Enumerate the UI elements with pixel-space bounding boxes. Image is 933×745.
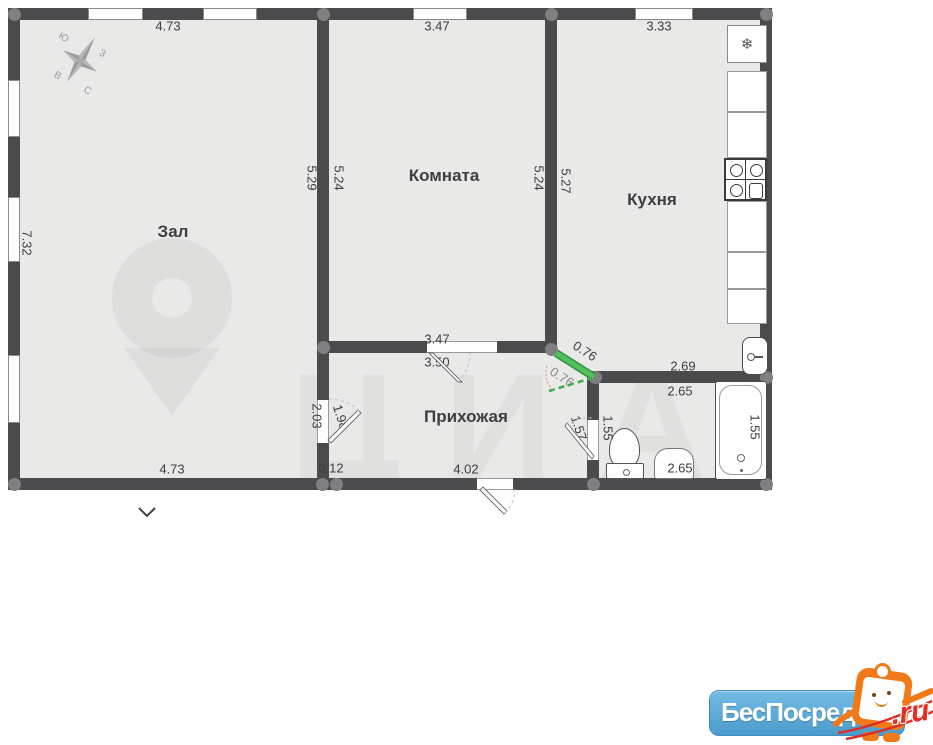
door-entrance <box>480 487 515 514</box>
dim-bath-bottom: 2.65 <box>667 461 692 476</box>
fridge-snowflake-icon: ❄ <box>741 36 754 53</box>
door-opening-bathroom <box>587 420 599 460</box>
dim-komnata-left: 5.24 <box>332 165 347 190</box>
watermark-pin-hole <box>152 278 192 318</box>
stove <box>724 158 767 201</box>
dim-zal-door-a: 2.03 <box>310 403 325 428</box>
kitchen-counter-4 <box>727 252 767 289</box>
window-left-3 <box>8 355 20 423</box>
room-label-zal: Зал <box>158 222 189 242</box>
kitchen-sink <box>742 337 768 375</box>
watermark-pin-point <box>124 348 220 416</box>
toilet-tank <box>606 463 644 479</box>
wall-komnata-kuhnya <box>545 8 557 353</box>
toilet-button-icon <box>623 469 630 476</box>
logo-mascot-foot <box>883 733 900 742</box>
room-label-komnata: Комната <box>409 166 480 186</box>
dim-top-zal: 4.73 <box>155 19 180 34</box>
window-top-1 <box>88 8 143 20</box>
scroll-down-chevron-icon[interactable] <box>139 508 155 516</box>
window-top-2 <box>203 8 257 20</box>
wall-joint <box>330 478 343 491</box>
stove-burner-icon <box>730 164 743 177</box>
kitchen-counter-3 <box>727 201 767 252</box>
dim-bath-top: 2.65 <box>667 384 692 399</box>
logo-mascot-eye-icon <box>887 691 891 695</box>
dim-kuhnya-bottom: 2.69 <box>670 359 695 374</box>
kitchen-counter-2 <box>727 112 767 158</box>
dim-komnata-bottom: 3.47 <box>424 332 449 347</box>
wall-bath-left-upper <box>587 383 599 420</box>
kitchen-sink-faucet-icon <box>755 356 763 358</box>
room-label-prihozhaya: Прихожая <box>424 407 508 427</box>
stove-divider-v <box>745 160 746 199</box>
wall-joint <box>545 8 558 21</box>
dim-bath-right: 1.55 <box>748 414 763 439</box>
bathtub-drain-icon <box>740 469 743 472</box>
dim-prihozhaya-top: 3.50 <box>424 355 449 370</box>
bathtub-drain-icon <box>737 454 745 462</box>
wall-joint <box>8 8 21 21</box>
room-label-kuhnya: Кухня <box>627 190 677 210</box>
stove-oven-icon <box>749 183 763 199</box>
window-left-1 <box>8 80 20 137</box>
wall-outer-bottom-left <box>8 478 477 490</box>
stove-burner-icon <box>730 184 743 197</box>
door-opening-entrance <box>477 478 513 490</box>
dim-komnata-right: 5.24 <box>532 165 547 190</box>
kitchen-sink-faucet-icon <box>747 353 755 361</box>
wall-hall-top-right <box>497 341 545 353</box>
wall-hall-top-left <box>329 341 427 353</box>
dim-top-komnata: 3.47 <box>424 19 449 34</box>
logo-mascot-foot <box>862 732 879 741</box>
kitchen-counter-5 <box>727 289 767 324</box>
dim-left-zal: 7.32 <box>20 230 35 255</box>
wall-joint <box>545 343 558 356</box>
logo-tld[interactable]: .ru <box>889 694 931 732</box>
wall-joint <box>316 478 329 491</box>
dim-bottom-offset: 0.12 <box>318 461 343 476</box>
window-left-2 <box>8 197 20 262</box>
stove-burner-icon <box>750 164 763 177</box>
watermark-layer: ЦИАН <box>20 20 760 478</box>
wall-joint <box>317 8 330 21</box>
wall-joint <box>587 478 600 491</box>
fridge: ❄ <box>727 25 767 63</box>
dim-kuhnya-left: 5.27 <box>559 168 574 193</box>
kitchen-counter-1 <box>727 71 767 112</box>
wall-joint <box>760 8 773 21</box>
dim-bottom-zal: 4.73 <box>159 462 184 477</box>
dim-bath-door-b: 1.55 <box>601 415 616 440</box>
wall-joint <box>589 371 602 384</box>
wall-joint <box>317 341 330 354</box>
wall-joint <box>8 478 21 491</box>
dim-bottom-prihozhaya: 4.02 <box>453 462 478 477</box>
dim-zal-right: 5.29 <box>305 165 320 190</box>
dim-top-kuhnya: 3.33 <box>646 19 671 34</box>
